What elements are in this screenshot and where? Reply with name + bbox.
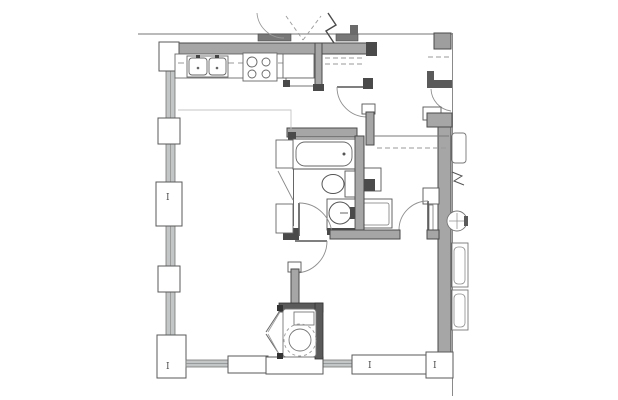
adjacent-sink-icon bbox=[452, 133, 466, 163]
range-cooktop-icon bbox=[243, 53, 277, 81]
column-marker: I bbox=[433, 361, 437, 371]
corner-column-block bbox=[426, 352, 453, 378]
wall-pier bbox=[266, 357, 323, 374]
living-room bbox=[178, 110, 293, 233]
column-marker: I bbox=[368, 361, 372, 371]
floor-plan-page: I I I bbox=[0, 0, 618, 400]
left-window-wall: I I bbox=[156, 42, 186, 378]
corridor-boundary bbox=[138, 13, 452, 43]
kitchen-double-sink-icon bbox=[187, 55, 228, 77]
column-marker: I bbox=[166, 193, 170, 203]
mullion-block bbox=[158, 118, 180, 144]
plumbing-wall-box bbox=[276, 204, 293, 233]
corner-column-block bbox=[157, 335, 186, 378]
wall-niche bbox=[423, 188, 439, 204]
toilet-icon bbox=[322, 171, 355, 197]
break-line-zigzag-icon bbox=[326, 13, 336, 43]
bathroom bbox=[283, 128, 439, 240]
floor-plan-drawing: I I I bbox=[0, 0, 618, 400]
bottom-window-wall: I bbox=[186, 355, 428, 374]
right-wall-and-adjacent-unit: I bbox=[423, 33, 468, 396]
column-block bbox=[156, 182, 182, 226]
bedroom-door-arc bbox=[399, 201, 428, 230]
washer-closet bbox=[266, 303, 323, 359]
corridor-door-leaf bbox=[258, 34, 291, 41]
mullion-block bbox=[158, 266, 180, 292]
washer-dryer-icon bbox=[283, 309, 316, 357]
wall-pier bbox=[228, 356, 268, 373]
plumbing-wall-box bbox=[276, 140, 293, 168]
desk-icon bbox=[360, 199, 392, 228]
wall-pier bbox=[352, 355, 428, 374]
refrigerator-icon bbox=[283, 54, 316, 87]
column-marker: I bbox=[166, 362, 170, 372]
bathtub-icon bbox=[293, 139, 355, 169]
break-mark-icon bbox=[452, 172, 464, 185]
soffit-outline bbox=[178, 110, 291, 129]
door-jamb bbox=[363, 78, 373, 89]
hall-door bbox=[288, 241, 327, 307]
